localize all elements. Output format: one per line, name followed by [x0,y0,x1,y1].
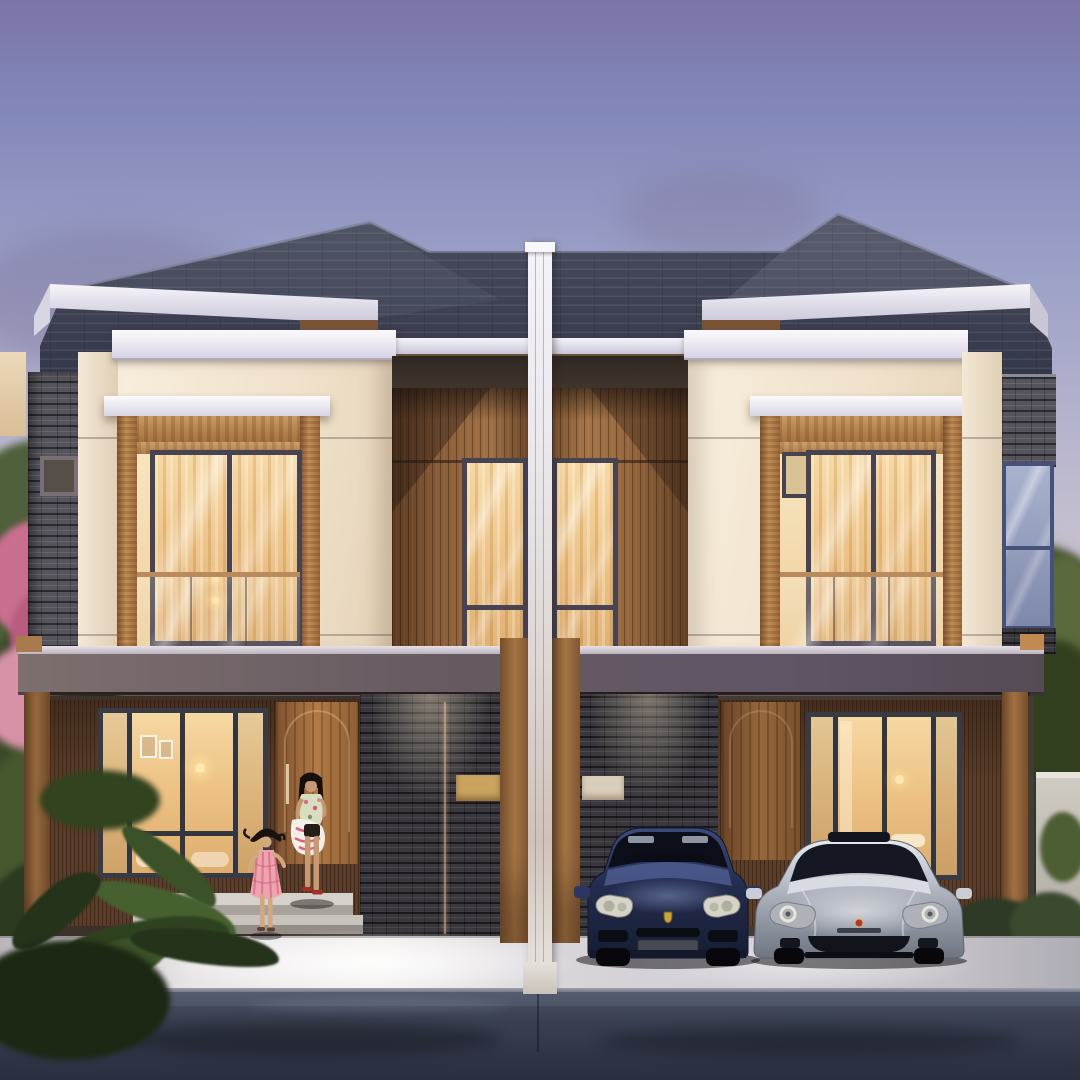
sedan-lamp [928,912,933,917]
mother-face [305,780,317,792]
porsche-crest [664,912,672,923]
floral-print [304,800,308,804]
mother-shorts [304,824,320,837]
road-seam [537,992,539,1052]
suv-visor [628,836,654,843]
red-shoe [312,890,323,895]
floral-print [313,806,317,810]
divider-seam [543,244,544,990]
divider-cap [525,242,555,252]
palm-leaves [1040,812,1080,882]
suv-visor [682,836,708,843]
sedan-mirror [956,888,972,899]
sedan-wheel [914,948,944,964]
sedan-chin [804,952,914,958]
sedan-side-scoop [918,938,938,948]
sedan-intake [808,936,910,952]
sedan-silver [742,820,976,970]
sedan-grille [837,928,881,933]
mother-leg [314,836,320,891]
sedan-side-scoop [780,938,800,948]
suv-wheel [706,948,740,966]
sedan-wheel [774,948,804,964]
party-wall-divider [528,244,552,990]
suv-blue [572,800,764,970]
suv-intake [708,930,738,942]
suv-wheel [596,948,630,966]
suv-lamp [710,903,719,912]
suv-cowl [632,852,704,862]
divider-pillar-left [500,638,529,943]
divider-base [523,962,557,994]
lamp-glow [895,775,904,784]
suv-lamp [722,901,733,912]
divider-seam [535,244,536,990]
road-smudge [600,1026,1020,1056]
sedan-mirror [746,888,762,899]
suv-mirror [574,886,590,898]
foreground-plant [0,770,300,1030]
dusk-duplex-render [0,0,1080,1080]
suv-lamp [604,901,615,912]
sedan-lamp [786,912,791,917]
sedan-sunroof [828,832,890,842]
floral-print [308,815,312,819]
address-plate [582,776,624,800]
suv-lamp [618,903,627,912]
mother-leg [305,836,311,888]
porsche-crest [855,919,863,927]
red-shoe [302,887,312,892]
frond-blob [40,770,160,830]
suv-grille [636,928,700,937]
suv-intake [598,930,628,942]
